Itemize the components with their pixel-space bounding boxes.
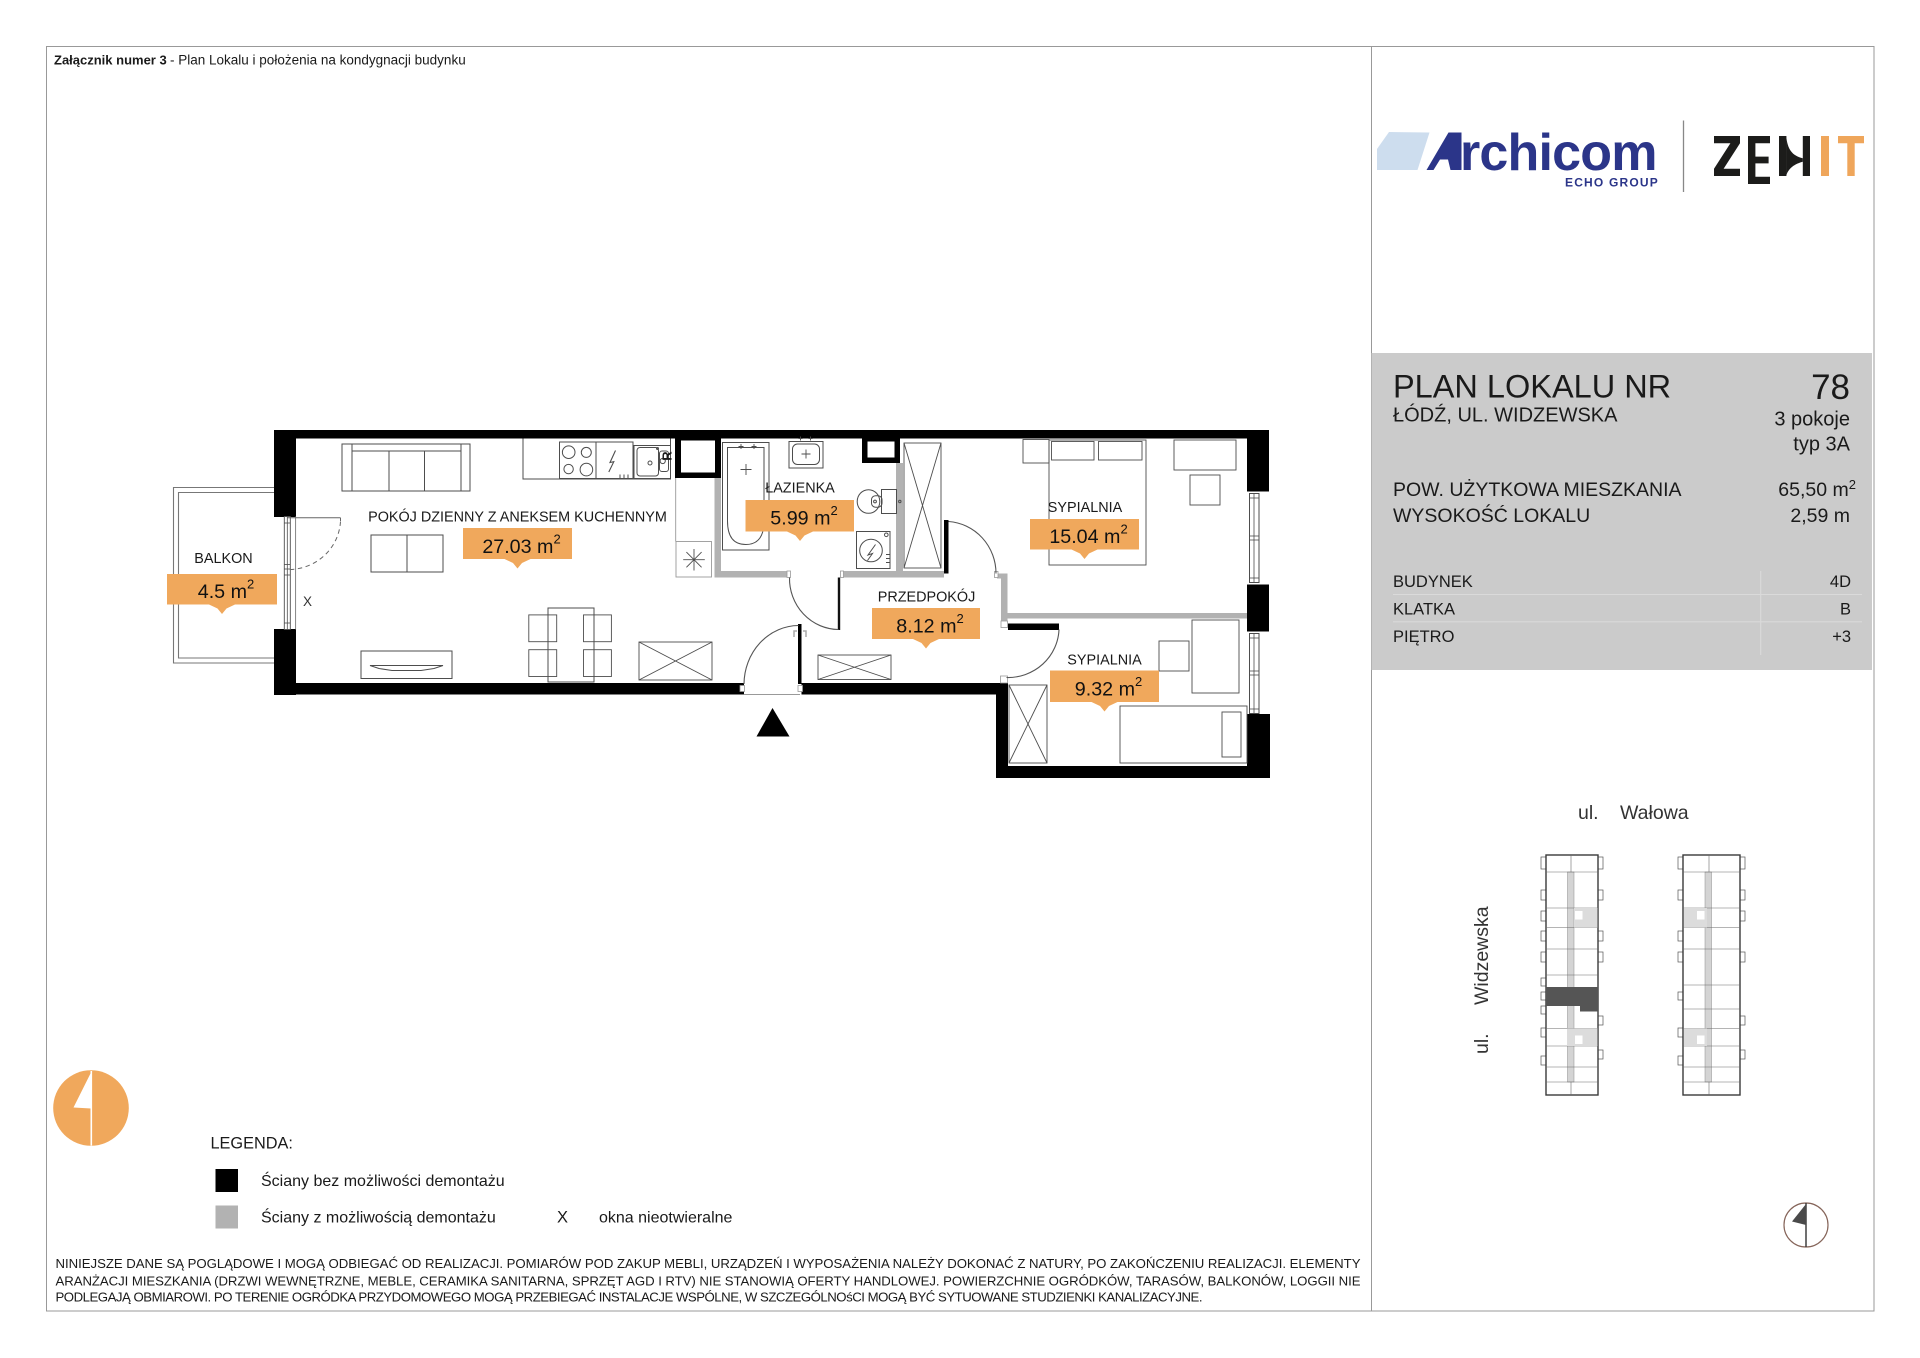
svg-text:PRZEDPOKÓJ: PRZEDPOKÓJ [878,589,976,606]
svg-text:POW. UŻYTKOWA MIESZKANIA: POW. UŻYTKOWA MIESZKANIA [1393,478,1682,501]
svg-text:SYPIALNIA: SYPIALNIA [1048,500,1123,516]
svg-text:LEGENDA:: LEGENDA: [211,1135,293,1153]
svg-text:SYPIALNIA: SYPIALNIA [1067,653,1142,669]
svg-text:Wałowa: Wałowa [1620,802,1689,824]
svg-text:WYSOKOŚĆ LOKALU: WYSOKOŚĆ LOKALU [1393,503,1590,527]
svg-text:4D: 4D [1830,573,1851,591]
svg-text:ŁÓDŹ, UL. WIDZEWSKA: ŁÓDŹ, UL. WIDZEWSKA [1393,404,1618,427]
svg-text:rchicom: rchicom [1460,124,1657,182]
svg-text:PLAN LOKALU NR: PLAN LOKALU NR [1393,369,1671,405]
svg-text:NINIEJSZE DANE SĄ POGLĄDOWE I: NINIEJSZE DANE SĄ POGLĄDOWE I MOGĄ ODBIE… [56,1256,1361,1271]
svg-text:X: X [303,594,312,609]
svg-text:5.99 m2: 5.99 m2 [770,503,837,530]
svg-text:PIĘTRO: PIĘTRO [1393,628,1455,646]
svg-text:ECHO GROUP: ECHO GROUP [1565,176,1659,190]
svg-text:ul.: ul. [1578,802,1599,824]
svg-text:PODLEGAJĄ OBMIAROWI. PO TERENI: PODLEGAJĄ OBMIAROWI. PO TERENIE OGRÓDKA … [56,1290,1203,1305]
svg-text:8.12 m2: 8.12 m2 [896,611,963,638]
svg-text:- Plan Lokalu i położenia na k: - Plan Lokalu i położenia na kondygnacji… [170,53,466,68]
svg-text:ul.: ul. [1471,1033,1493,1054]
svg-text:27.03 m2: 27.03 m2 [482,532,560,559]
svg-text:X: X [557,1209,568,1227]
svg-text:typ 3A: typ 3A [1793,434,1850,456]
svg-text:Załącznik numer 3: Załącznik numer 3 [54,53,167,68]
svg-text:Ściany z możliwością demontażu: Ściany z możliwością demontażu [261,1208,496,1227]
svg-text:BALKON: BALKON [194,551,252,567]
svg-text:BUDYNEK: BUDYNEK [1393,573,1473,591]
svg-text:4.5 m2: 4.5 m2 [198,577,254,604]
svg-text:78: 78 [1811,368,1850,407]
svg-text:ARANŻACJI MIESZKANIA (DRZWI WE: ARANŻACJI MIESZKANIA (DRZWI WEWNĘTRZNE, … [56,1273,1361,1288]
svg-text:3 pokoje: 3 pokoje [1774,409,1850,431]
svg-text:Ściany bez możliwości demontaż: Ściany bez możliwości demontażu [261,1171,505,1190]
svg-text:B: B [1840,601,1851,619]
svg-text:9.32 m2: 9.32 m2 [1075,674,1142,701]
svg-text:KLATKA: KLATKA [1393,601,1455,619]
svg-text:okna nieotwieralne: okna nieotwieralne [599,1210,733,1227]
svg-text:Widzewska: Widzewska [1471,906,1493,1005]
svg-text:65,50 m2: 65,50 m2 [1778,477,1856,501]
svg-text:ŁAZIENKA: ŁAZIENKA [765,481,835,497]
svg-text:15.04 m2: 15.04 m2 [1049,522,1127,549]
svg-text:POKÓJ DZIENNY Z ANEKSEM KUCHEN: POKÓJ DZIENNY Z ANEKSEM KUCHENNYM [368,509,667,526]
svg-text:R: R [660,451,675,461]
svg-text:2,59 m: 2,59 m [1790,505,1850,527]
svg-text:+3: +3 [1832,628,1851,646]
